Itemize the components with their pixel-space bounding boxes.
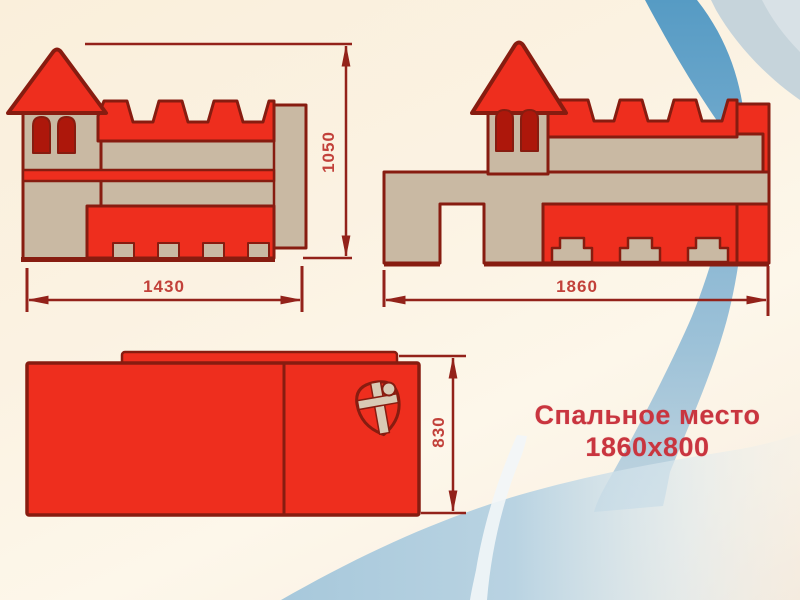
arched-window-icon bbox=[496, 110, 513, 151]
upper-rail-panel bbox=[546, 134, 763, 172]
arched-window-icon bbox=[521, 110, 538, 151]
drawing-canvas bbox=[0, 0, 800, 600]
catalog-drawing-page: 1430 1050 1860 830 Спальное место 1860x8… bbox=[0, 0, 800, 600]
arched-window-icon bbox=[33, 117, 50, 153]
tower-roof-icon bbox=[8, 50, 106, 114]
dimension-label-1430: 1430 bbox=[134, 277, 194, 297]
accent-stripe bbox=[23, 170, 274, 181]
mattress-area bbox=[27, 363, 419, 515]
sleeping-area-size-label: 1860x800 bbox=[500, 432, 795, 463]
bed-top-view bbox=[27, 352, 419, 515]
tower-roof-icon bbox=[472, 43, 566, 114]
dimension-label-1050: 1050 bbox=[319, 122, 339, 182]
arched-window-icon bbox=[58, 117, 75, 153]
dimension-label-1860: 1860 bbox=[547, 277, 607, 297]
sleeping-area-label: Спальное место bbox=[500, 400, 795, 431]
battlement-band bbox=[98, 101, 274, 141]
castle-side-view-left bbox=[8, 50, 306, 260]
foot-pedestals bbox=[552, 238, 728, 262]
dimension-label-830: 830 bbox=[429, 402, 449, 462]
